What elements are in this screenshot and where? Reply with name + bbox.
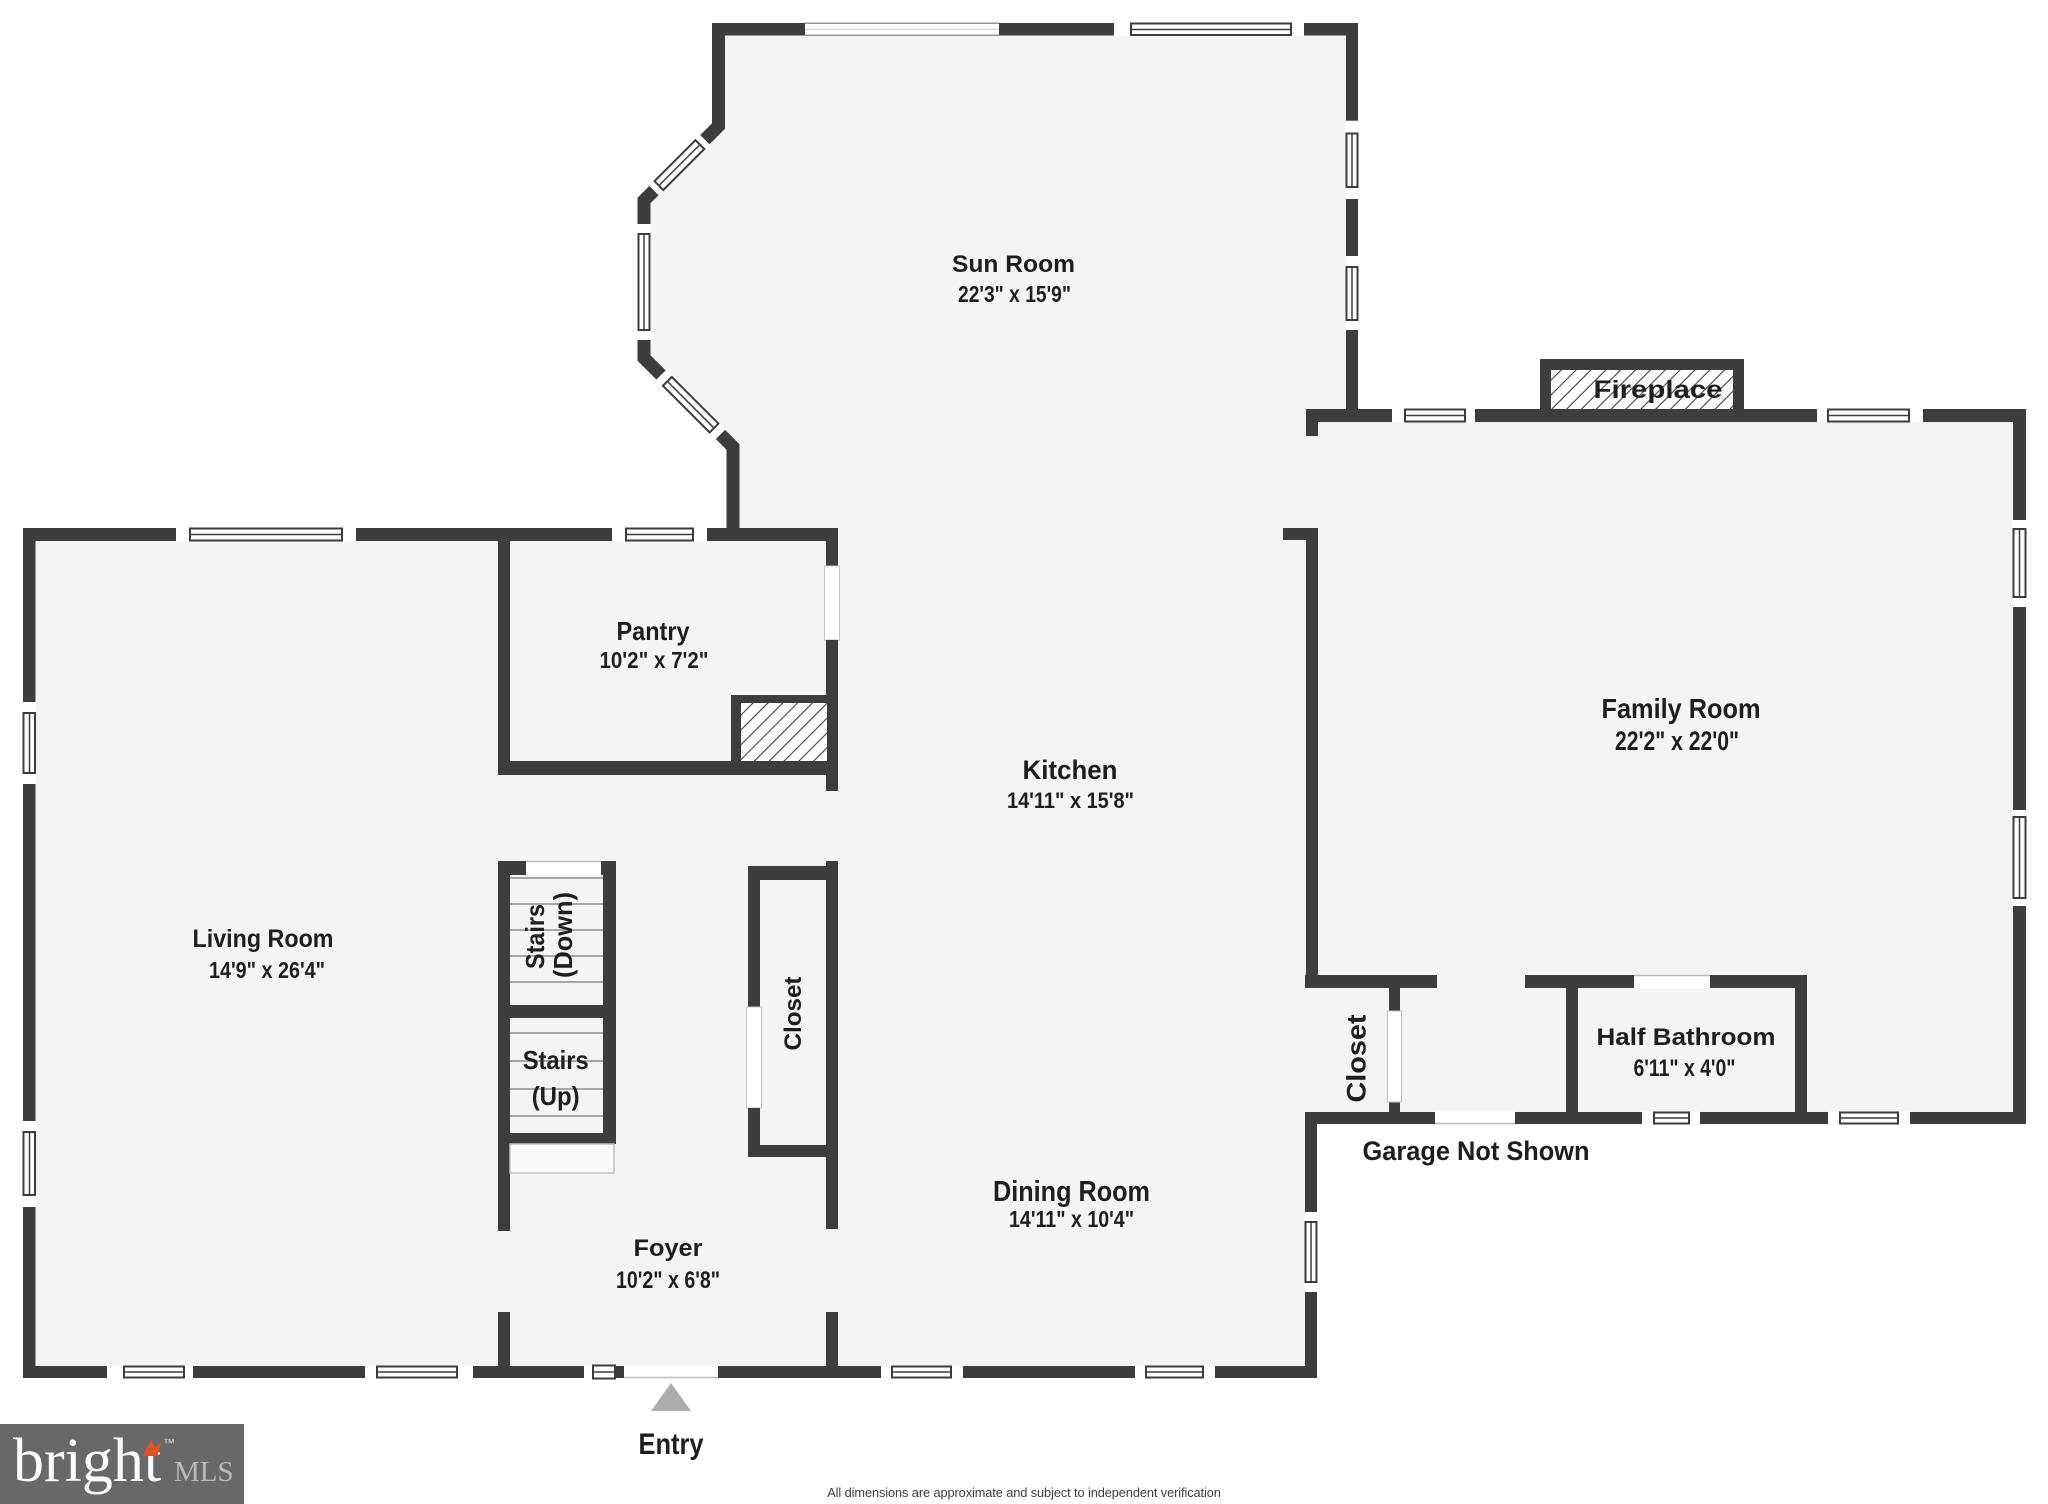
svg-text:Foyer: Foyer — [634, 1235, 703, 1262]
svg-text:Fireplace: Fireplace — [1594, 376, 1723, 404]
svg-text:Half Bathroom: Half Bathroom — [1597, 1024, 1776, 1051]
svg-text:Stairs: Stairs — [520, 904, 550, 969]
svg-text:bright: bright — [13, 1427, 161, 1495]
svg-text:Entry: Entry — [639, 1428, 704, 1461]
svg-text:(Up): (Up) — [532, 1081, 580, 1111]
svg-text:10'2" x 6'8": 10'2" x 6'8" — [616, 1267, 720, 1294]
svg-text:6'11" x 4'0": 6'11" x 4'0" — [1634, 1055, 1736, 1082]
svg-text:MLS: MLS — [174, 1456, 234, 1488]
svg-text:All dimensions are approximate: All dimensions are approximate and subje… — [827, 1485, 1221, 1500]
svg-text:22'3" x 15'9": 22'3" x 15'9" — [958, 281, 1071, 307]
svg-text:Garage Not Shown: Garage Not Shown — [1363, 1136, 1590, 1166]
svg-text:10'2" x 7'2": 10'2" x 7'2" — [600, 647, 709, 673]
svg-text:14'11" x 15'8": 14'11" x 15'8" — [1007, 788, 1134, 813]
svg-text:Sun Room: Sun Room — [952, 251, 1075, 278]
svg-text:(Down): (Down) — [548, 892, 578, 978]
svg-text:14'11" x 10'4": 14'11" x 10'4" — [1009, 1206, 1134, 1232]
svg-text:14'9" x 26'4": 14'9" x 26'4" — [209, 957, 325, 983]
svg-text:Kitchen: Kitchen — [1023, 755, 1118, 785]
svg-text:Stairs: Stairs — [523, 1045, 589, 1075]
svg-text:Living Room: Living Room — [193, 925, 334, 953]
svg-text:Dining Room: Dining Room — [993, 1176, 1150, 1208]
svg-text:Pantry: Pantry — [617, 616, 690, 646]
svg-text:Closet: Closet — [780, 977, 807, 1051]
svg-text:Closet: Closet — [1342, 1015, 1372, 1103]
svg-text:22'2" x 22'0": 22'2" x 22'0" — [1615, 726, 1739, 756]
svg-text:Family Room: Family Room — [1602, 693, 1761, 724]
svg-text:™: ™ — [163, 1436, 175, 1450]
